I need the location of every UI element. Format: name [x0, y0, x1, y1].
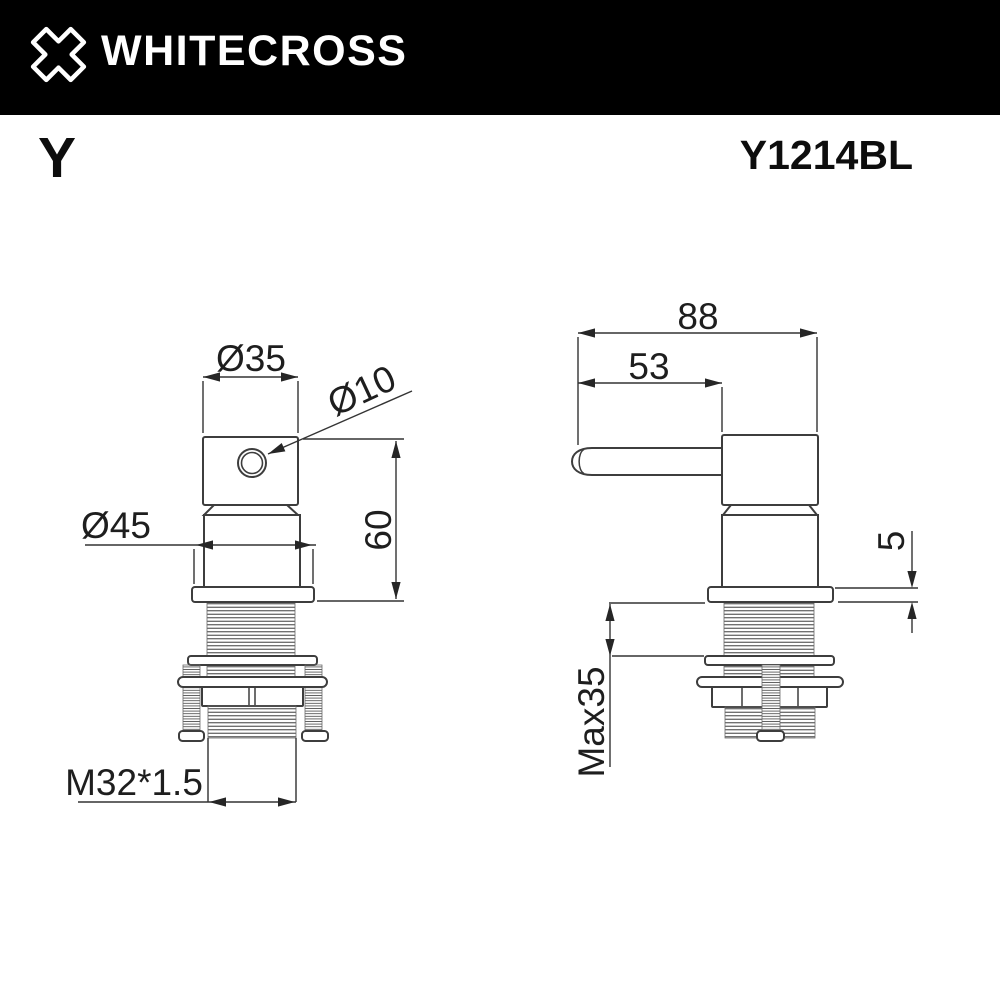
- dim-escutcheon-thickness: 5: [835, 531, 918, 633]
- neck-groove-front: [204, 505, 298, 515]
- washer-side: [705, 656, 834, 665]
- dim-label-hole-diameter: Ø10: [321, 357, 402, 424]
- thread-section-lower-front: [208, 706, 296, 738]
- dim-label-escutcheon-diameter: Ø45: [81, 505, 151, 546]
- handle-hole-inner: [242, 453, 263, 474]
- stud-cap-right: [302, 731, 328, 741]
- brand-header: WHITECROSS: [0, 0, 1000, 115]
- dim-max-mounting-thickness: Max35: [571, 603, 705, 778]
- dim-thread-spec: M32*1.5: [65, 762, 296, 807]
- washer-front: [188, 656, 317, 665]
- dim-label-body-height: 60: [358, 509, 399, 550]
- dim-label-total-length: 88: [677, 296, 718, 337]
- escutcheon-flange-side: [708, 587, 833, 602]
- brand-name: WHITECROSS: [101, 30, 407, 73]
- lock-nut-front: [202, 687, 303, 706]
- mounting-stud-center: [762, 665, 780, 732]
- front-view: Ø35 Ø10 Ø45 60 M32*1.5: [65, 338, 412, 807]
- dim-label-thread-spec: M32*1.5: [65, 762, 203, 803]
- dim-total-length: 88: [578, 296, 817, 445]
- dim-label-max-mounting-thickness: Max35: [571, 666, 612, 777]
- valve-body-front: [204, 515, 300, 587]
- dim-top-diameter: Ø35: [203, 338, 298, 433]
- x-cross-icon: [27, 23, 90, 86]
- thread-section-upper-front: [207, 602, 295, 656]
- dim-handle-length: 53: [578, 346, 722, 432]
- side-view: 88 53 5 Max35: [571, 296, 918, 778]
- dim-label-handle-length: 53: [628, 346, 669, 387]
- stud-cap-center: [757, 731, 784, 741]
- mounting-stud-left: [183, 665, 200, 731]
- technical-drawing: Ø35 Ø10 Ø45 60 M32*1.5: [0, 130, 1000, 870]
- mounting-stud-right: [305, 665, 322, 731]
- inlet-pipe-front: [208, 738, 296, 802]
- dim-body-height: 60: [303, 439, 404, 601]
- neck-groove-side: [723, 505, 817, 515]
- escutcheon-flange-front: [192, 587, 314, 602]
- dim-label-top-diameter: Ø35: [216, 338, 286, 379]
- lever-handle: [572, 448, 722, 475]
- stud-cap-left: [179, 731, 204, 741]
- mounting-plate-front: [178, 677, 327, 687]
- dim-label-escutcheon-thickness: 5: [871, 531, 912, 552]
- valve-body-side: [722, 515, 818, 587]
- thread-section-upper-side: [724, 602, 814, 656]
- valve-head-side: [722, 435, 818, 505]
